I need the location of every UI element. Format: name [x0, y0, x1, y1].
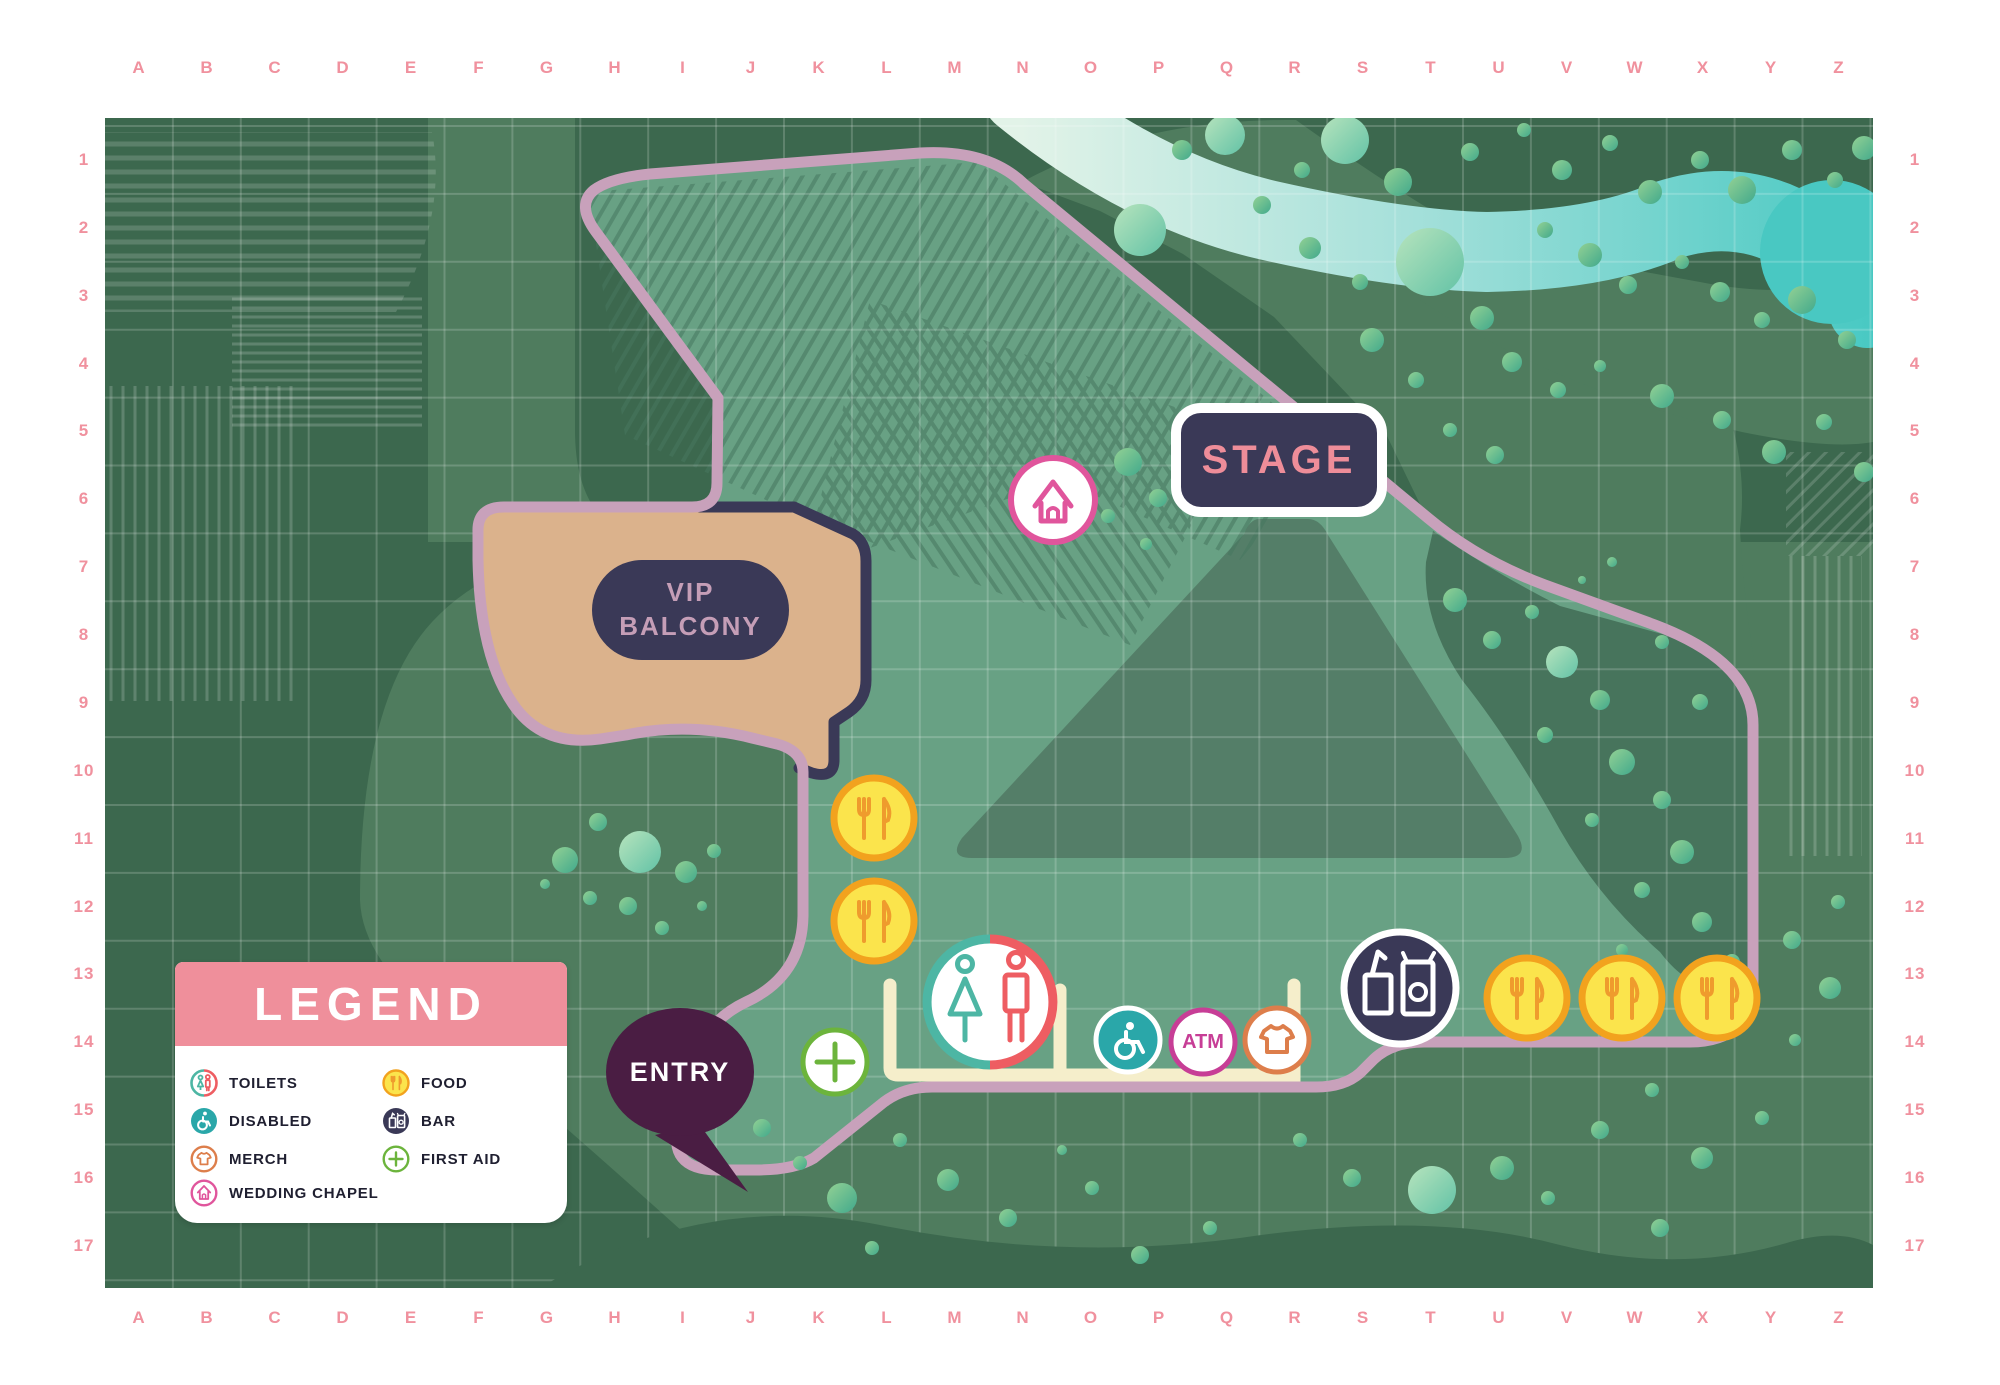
- vip-balcony-label: VIPBALCONY: [619, 576, 762, 644]
- festival-map-screen: ABCDEFGHIJKLMNOPQRSTUVWXYZ ABCDEFGHIJKLM…: [0, 0, 2000, 1385]
- legend-item-bar: BAR: [381, 1106, 456, 1136]
- wedding-chapel-icon: [189, 1178, 219, 1208]
- disabled-marker[interactable]: [1096, 1008, 1160, 1072]
- first-aid-icon: [381, 1144, 411, 1174]
- bar-marker[interactable]: [1344, 932, 1456, 1044]
- legend-header: LEGEND: [175, 962, 567, 1046]
- food-marker[interactable]: [1677, 958, 1757, 1038]
- legend-item-first-aid: FIRST AID: [381, 1144, 501, 1174]
- first-aid-marker[interactable]: [803, 1030, 867, 1094]
- stage-label-box: STAGE: [1171, 403, 1387, 517]
- legend-panel: LEGEND TOILETS DISABLED MERCH: [175, 962, 567, 1223]
- legend-item-merch: MERCH: [189, 1144, 288, 1174]
- food-marker[interactable]: [1582, 958, 1662, 1038]
- toilets-marker[interactable]: [927, 939, 1053, 1065]
- atm-label[interactable]: ATM: [1172, 1030, 1234, 1054]
- legend-item-wedding-chapel: WEDDING CHAPEL: [189, 1178, 379, 1208]
- toilets-icon: [189, 1068, 219, 1098]
- legend-item-toilets: TOILETS: [189, 1068, 298, 1098]
- merch-marker[interactable]: [1245, 1008, 1309, 1072]
- food-marker[interactable]: [834, 778, 914, 858]
- wedding-chapel-marker[interactable]: [1011, 458, 1095, 542]
- legend-title: LEGEND: [254, 977, 488, 1031]
- merch-icon: [189, 1144, 219, 1174]
- disabled-icon: [189, 1106, 219, 1136]
- stage-label: STAGE: [1202, 438, 1357, 483]
- legend-item-food: FOOD: [381, 1068, 468, 1098]
- food-marker[interactable]: [1487, 958, 1567, 1038]
- food-marker[interactable]: [834, 881, 914, 961]
- legend-item-disabled: DISABLED: [189, 1106, 312, 1136]
- entry-label[interactable]: ENTRY: [606, 1050, 754, 1094]
- food-icon: [381, 1068, 411, 1098]
- bar-icon: [381, 1106, 411, 1136]
- vip-balcony-label-box: VIPBALCONY: [592, 560, 789, 660]
